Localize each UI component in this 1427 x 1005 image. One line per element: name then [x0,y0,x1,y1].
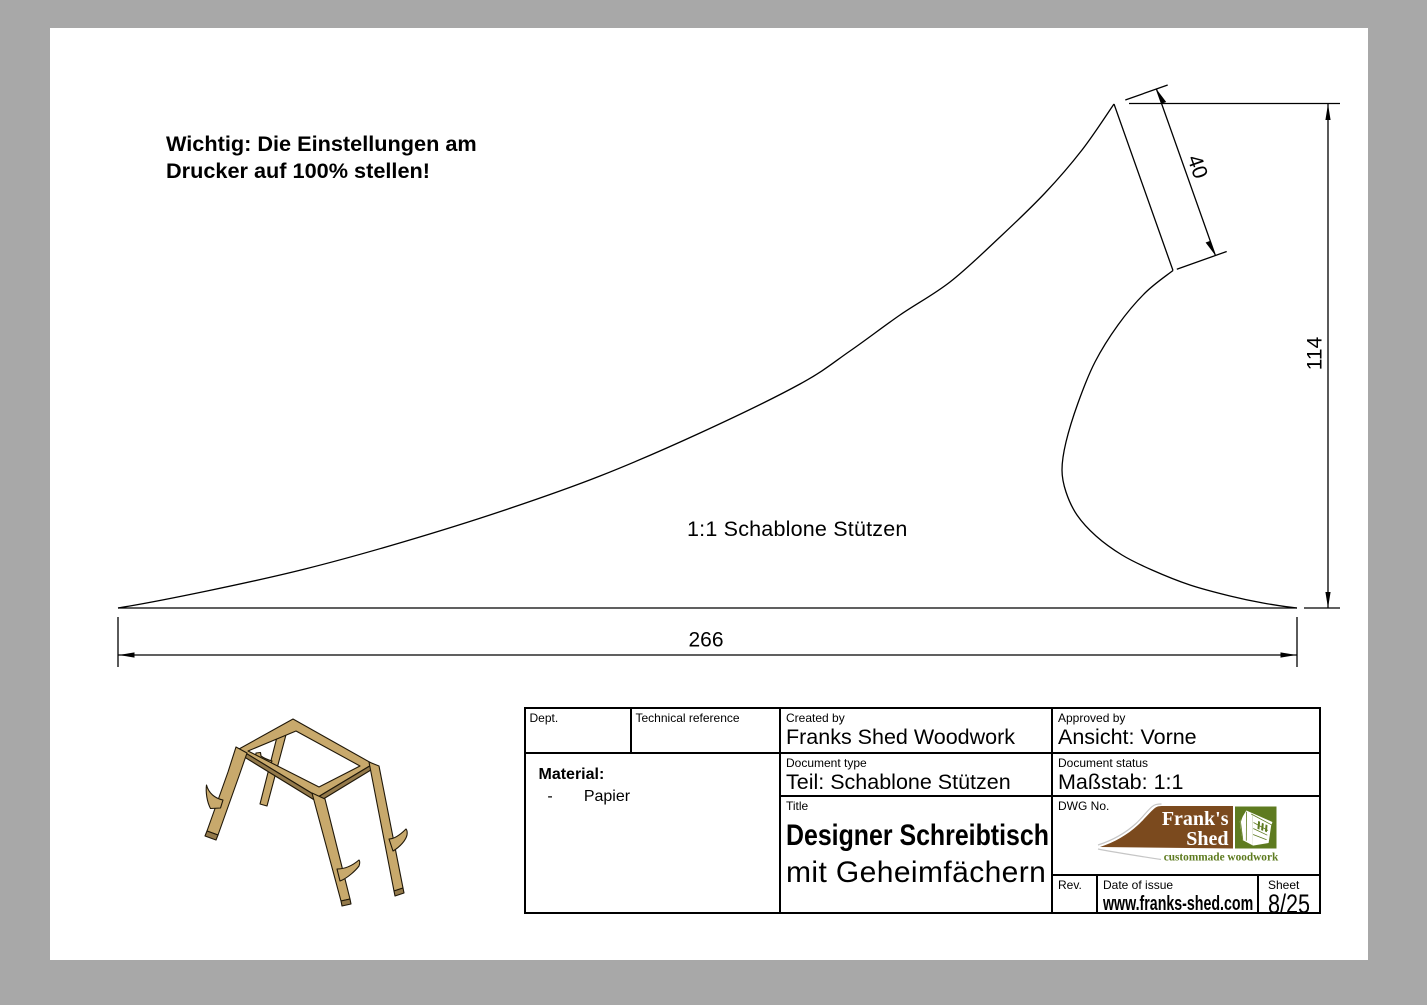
svg-text:custommade woodwork: custommade woodwork [1164,852,1279,864]
svg-text:266: 266 [688,629,723,652]
svg-text:40: 40 [1182,152,1211,182]
svg-text:114: 114 [1304,336,1327,370]
svg-text:Shed: Shed [1186,828,1228,850]
svg-text:Frank's: Frank's [1162,808,1229,830]
